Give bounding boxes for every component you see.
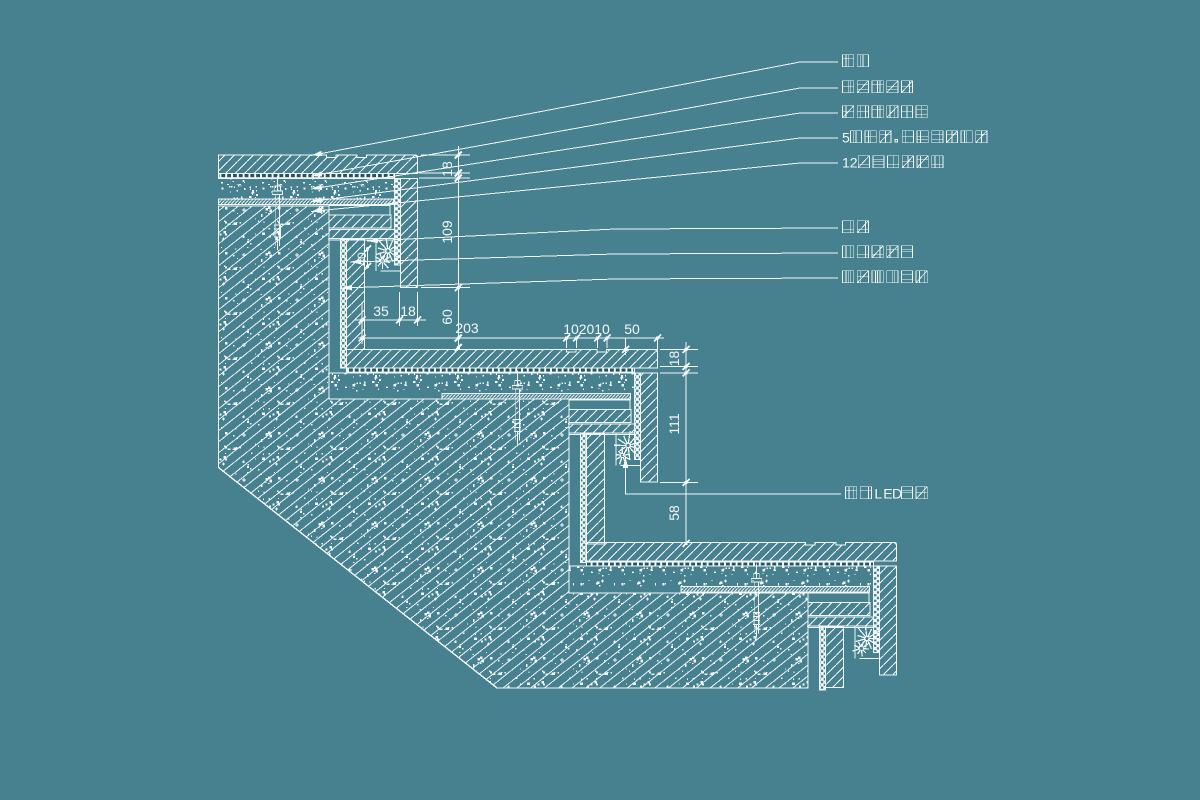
- svg-text:20: 20: [579, 321, 595, 337]
- svg-text:1: 1: [842, 155, 850, 171]
- svg-text:60: 60: [439, 309, 455, 325]
- svg-text:D: D: [892, 486, 902, 502]
- svg-text:109: 109: [439, 220, 455, 244]
- svg-text:35: 35: [373, 303, 389, 319]
- svg-text:5: 5: [842, 130, 850, 146]
- svg-text:18: 18: [400, 303, 416, 319]
- svg-text:111: 111: [666, 413, 682, 434]
- svg-text:10: 10: [563, 321, 579, 337]
- svg-text:50: 50: [624, 321, 640, 337]
- svg-text:L: L: [874, 486, 882, 502]
- svg-text:18: 18: [666, 351, 682, 367]
- svg-text:203: 203: [455, 320, 479, 336]
- svg-text:10: 10: [594, 321, 610, 337]
- svg-text:2: 2: [850, 155, 858, 171]
- svg-text:58: 58: [666, 505, 682, 521]
- svg-text:40: 40: [355, 252, 369, 266]
